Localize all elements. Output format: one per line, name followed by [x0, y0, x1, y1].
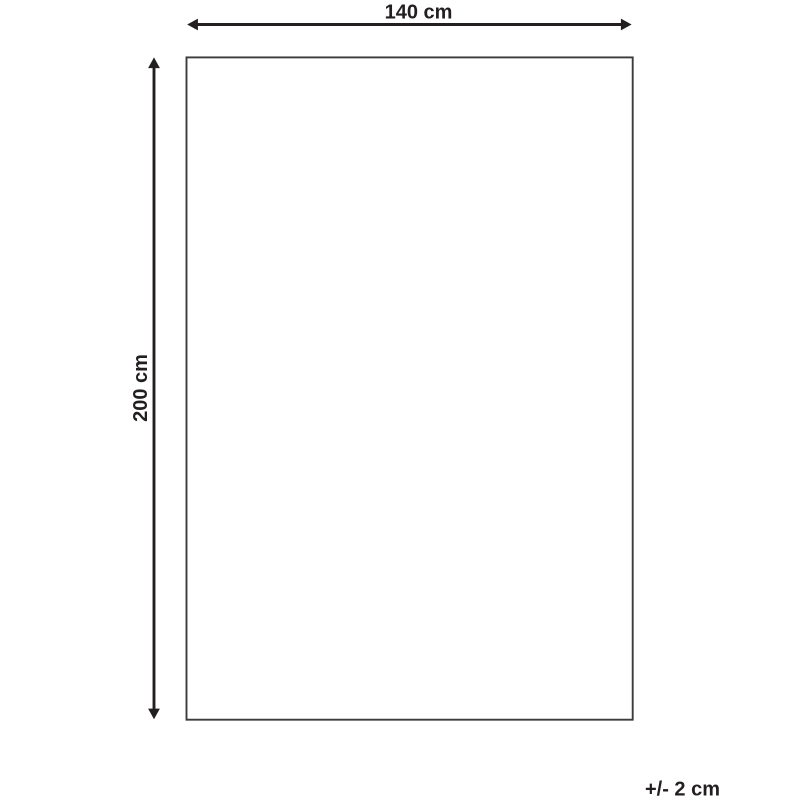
- svg-text:200 cm: 200 cm: [130, 354, 152, 422]
- svg-text:+/- 2 cm: +/- 2 cm: [645, 778, 720, 800]
- svg-text:140 cm: 140 cm: [385, 2, 453, 24]
